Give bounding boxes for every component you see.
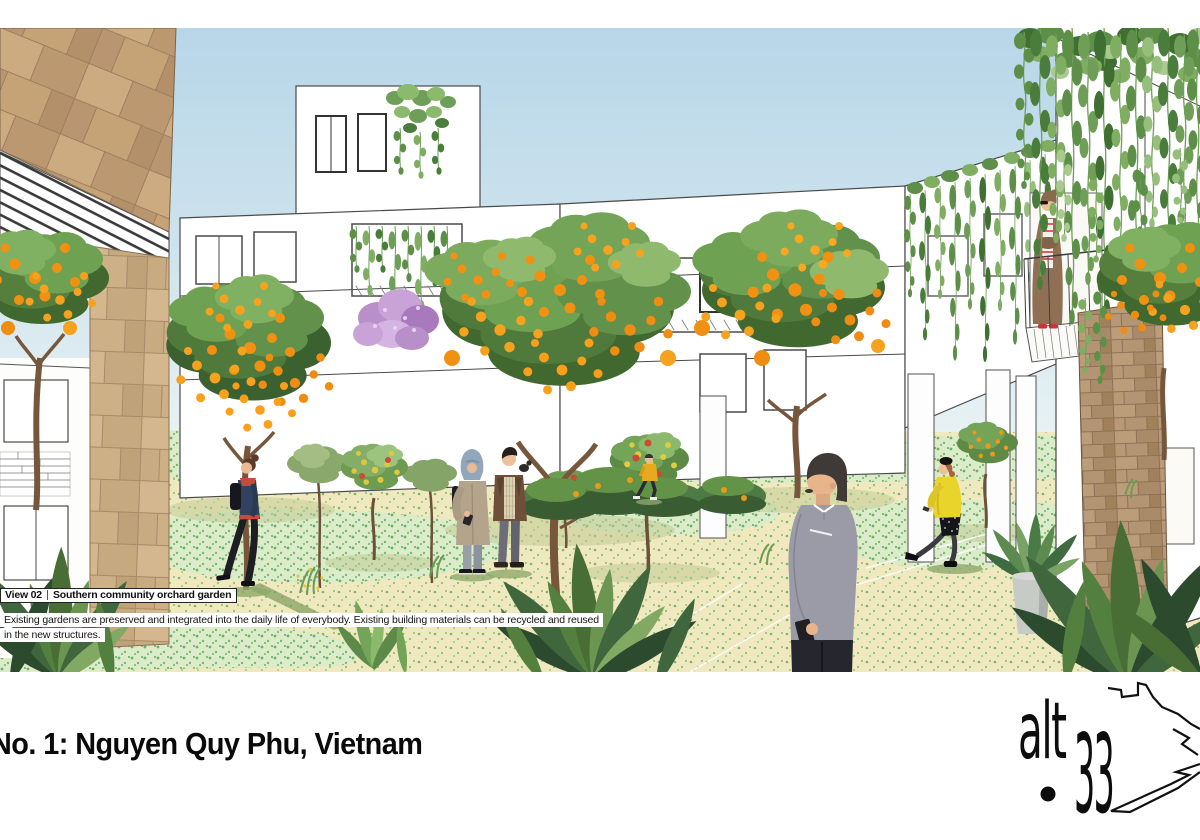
view-label-name: Southern community orchard garden	[53, 589, 231, 601]
caption-line-1: Existing gardens are preserved and integ…	[0, 613, 603, 627]
logo-number: 33	[1074, 711, 1113, 832]
caption-line-2: in the new structures.	[0, 628, 105, 642]
orchard-illustration	[0, 28, 1200, 672]
logo-word: alt	[1018, 685, 1066, 777]
view-label: View 02 Southern community orchard garde…	[0, 588, 237, 603]
view-label-separator	[47, 590, 48, 600]
presentation-board: View 02 Southern community orchard garde…	[0, 0, 1200, 840]
alt33-logo: alt 33	[992, 660, 1200, 832]
view-label-id: View 02	[5, 589, 42, 601]
logo-sketch-outline	[1108, 683, 1200, 812]
board-title: No. 1: Nguyen Quy Phu, Vietnam	[0, 726, 422, 762]
logo-dot	[1041, 787, 1056, 802]
